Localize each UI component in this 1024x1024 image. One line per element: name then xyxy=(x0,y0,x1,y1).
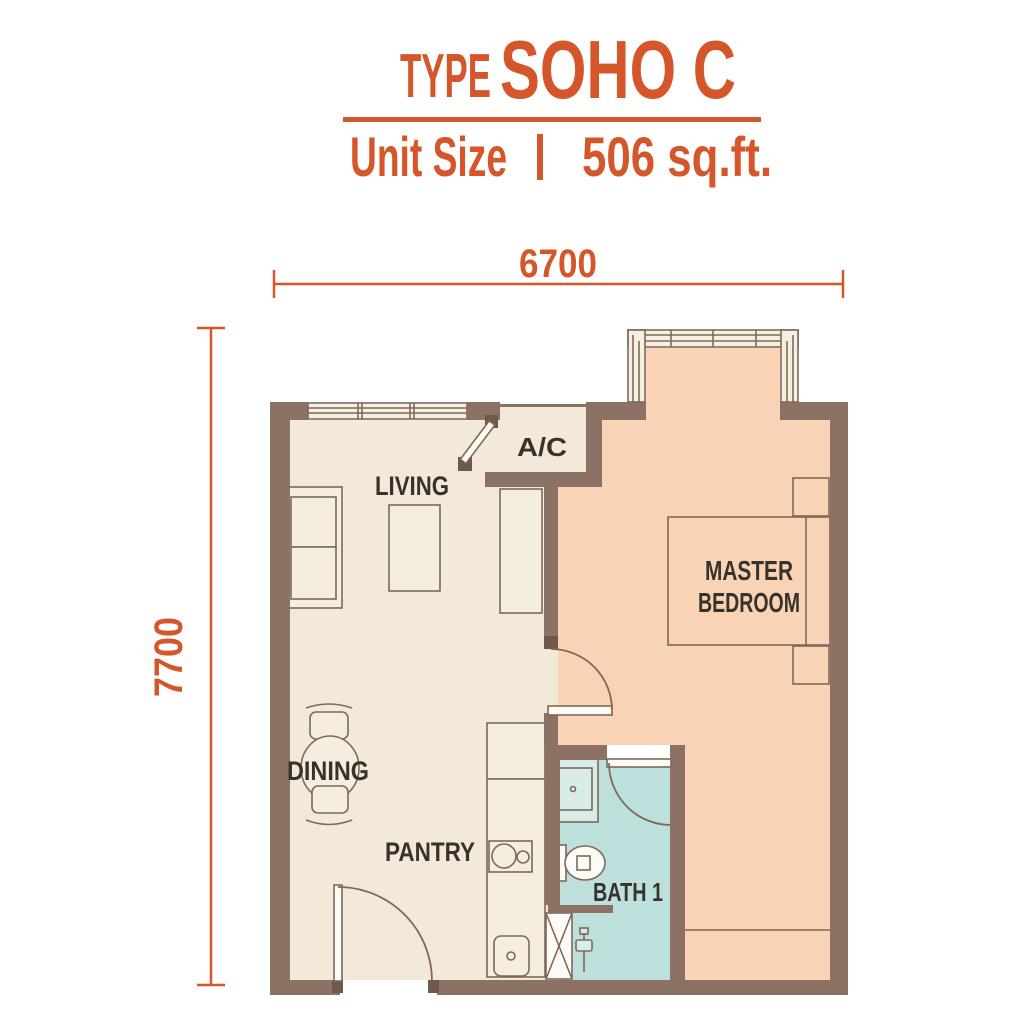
wall-bedroom-partition xyxy=(544,713,558,747)
kitchen-sink xyxy=(494,936,529,976)
living-window xyxy=(308,403,467,419)
master-bedroom-label-line1: MASTER xyxy=(705,555,793,586)
wall-top xyxy=(270,402,308,420)
master-bedroom-label-line2: BEDROOM xyxy=(698,587,800,618)
wall-bath-right xyxy=(670,745,685,980)
wall-ac-bottom xyxy=(485,472,602,487)
wall-ac-edge xyxy=(496,404,588,407)
wall-right xyxy=(830,402,848,995)
dining-chair xyxy=(312,786,348,813)
wall-bottom xyxy=(437,980,848,995)
sofa xyxy=(282,487,342,608)
coffee-table xyxy=(389,505,440,591)
service-shaft xyxy=(546,913,572,979)
unit-size-label: Unit Size xyxy=(350,125,507,188)
wall-top xyxy=(602,402,646,420)
dimension-height-label: 7700 xyxy=(147,617,191,697)
floor-plan-canvas: TYPE SOHO C Unit Size 506 sq.ft. 6700 77… xyxy=(0,0,1024,1024)
cooktop xyxy=(489,841,532,872)
subtitle-separator xyxy=(537,134,543,180)
unit-size-value: 506 sq.ft. xyxy=(582,125,772,188)
kitchen-counter xyxy=(487,723,545,977)
title-divider xyxy=(343,117,761,122)
title-type-label: TYPE xyxy=(400,42,491,111)
bath-1-label: BATH 1 xyxy=(593,877,663,907)
title-plan-name: SOHO C xyxy=(500,23,736,116)
wall-top xyxy=(780,402,848,420)
living-label: LIVING xyxy=(375,471,449,501)
dimension-height: 7700 xyxy=(147,328,225,985)
ac-ledge-label: A/C xyxy=(517,432,567,462)
tv-console xyxy=(500,489,542,613)
nightstand xyxy=(793,478,829,516)
wall-bedroom-partition xyxy=(544,487,558,648)
wall-bath-left xyxy=(545,760,560,905)
kitchen-cabinet xyxy=(487,723,545,779)
pantry-label: PANTRY xyxy=(385,837,475,867)
wall-bath-top xyxy=(545,745,607,760)
dining-chair xyxy=(310,712,348,739)
nightstand xyxy=(793,646,829,684)
wall-bottom xyxy=(270,980,340,995)
floor-plan-page: TYPE SOHO C Unit Size 506 sq.ft. 6700 77… xyxy=(0,0,1024,1024)
dimension-width-label: 6700 xyxy=(519,242,597,286)
title-block: TYPE SOHO C Unit Size 506 sq.ft. xyxy=(343,23,772,188)
wall-left xyxy=(270,402,290,995)
dining-label: DINING xyxy=(287,756,369,786)
dimension-width: 6700 xyxy=(274,242,843,298)
